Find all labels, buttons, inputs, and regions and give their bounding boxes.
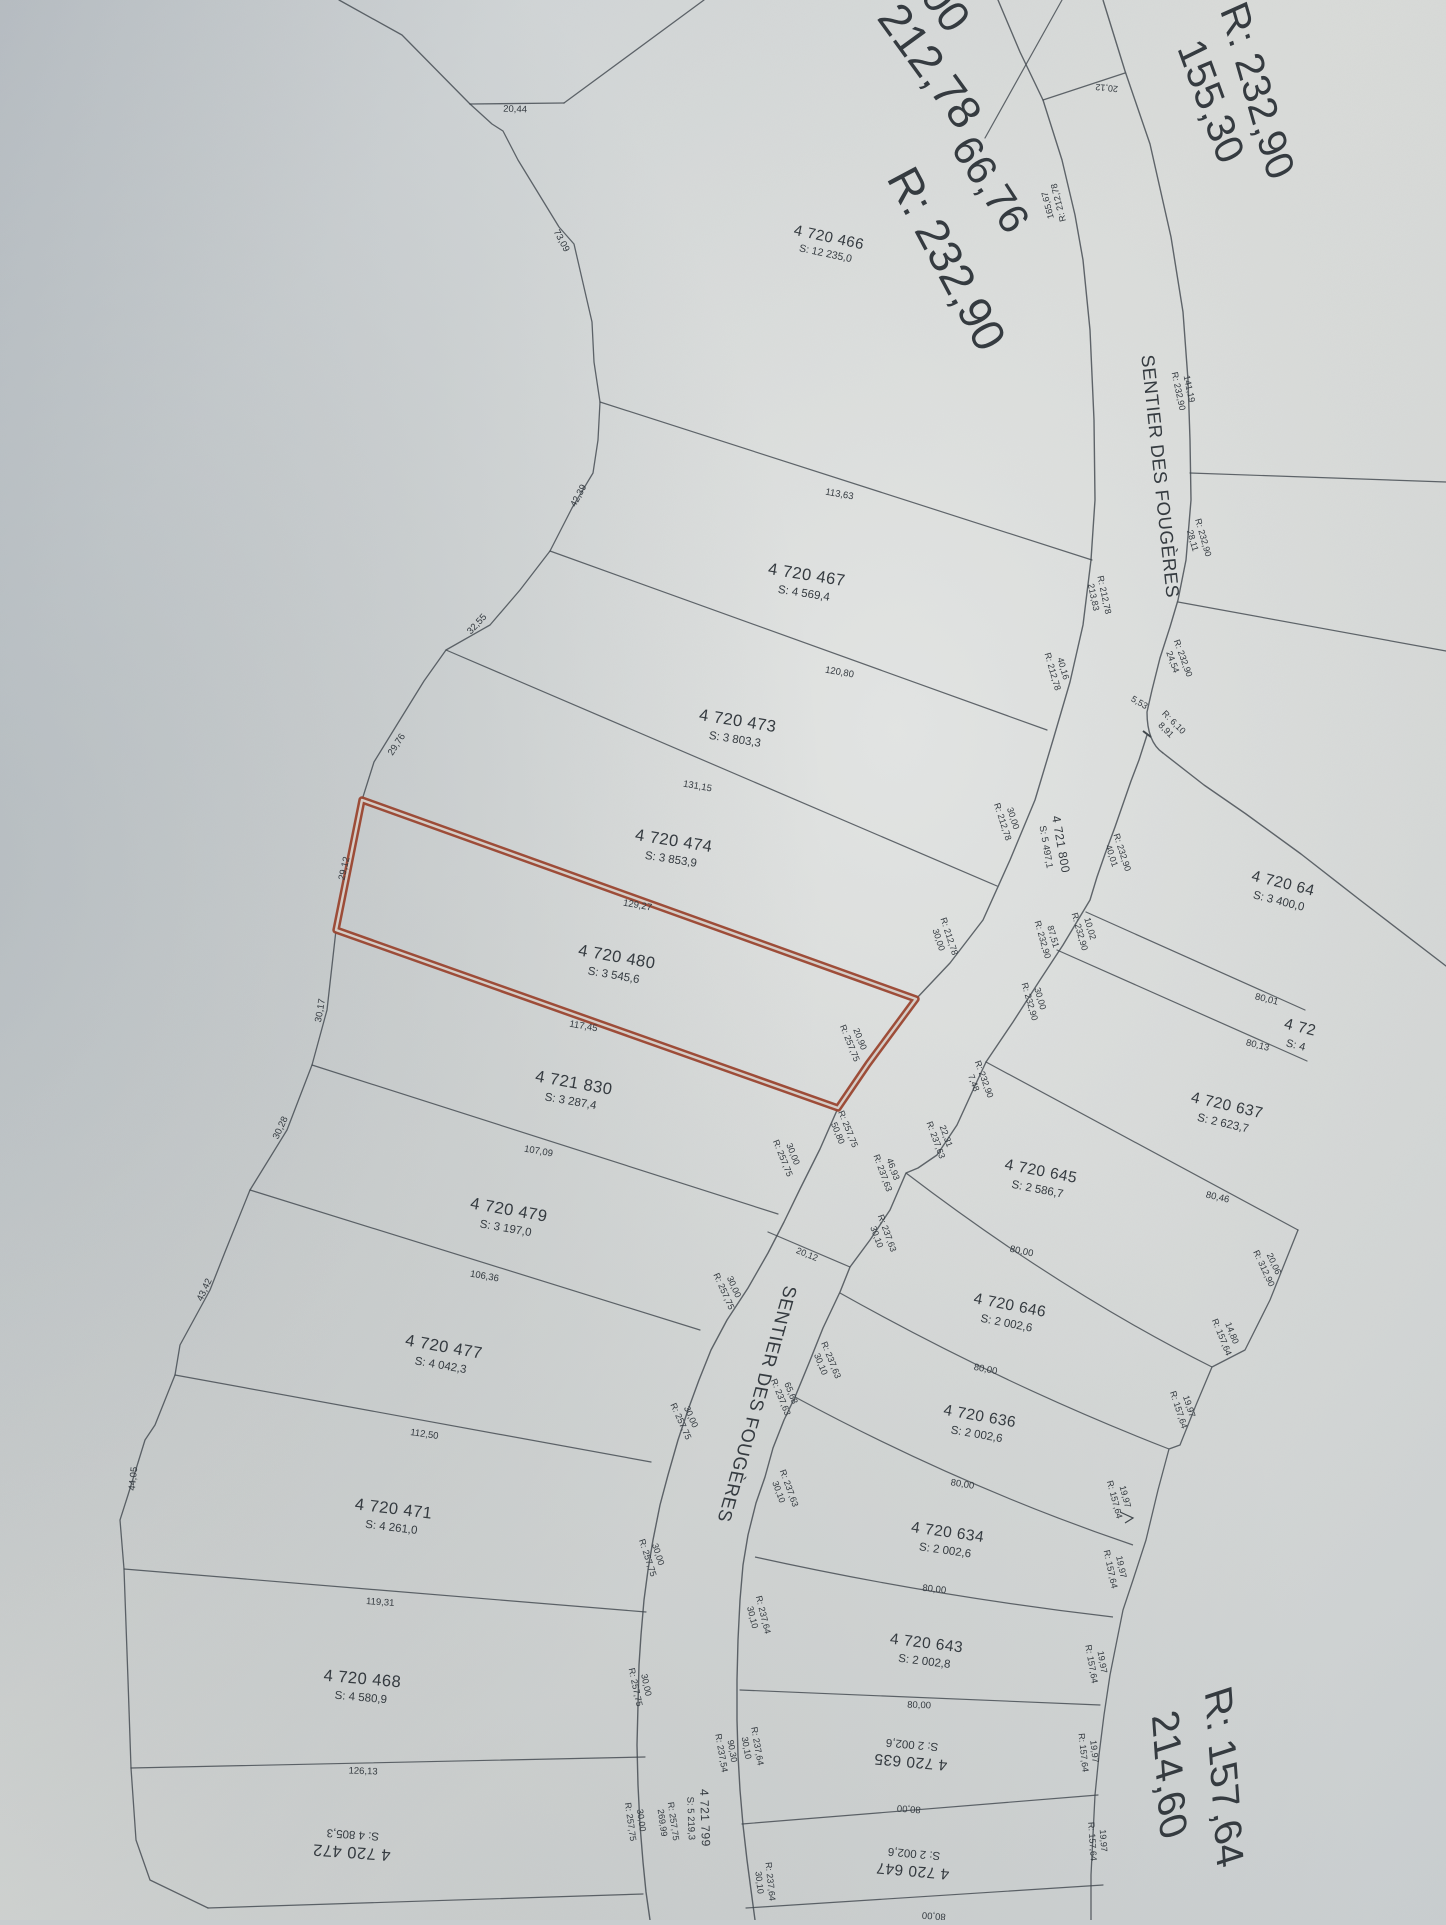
svg-text:S: 5 219,3: S: 5 219,3 bbox=[684, 1797, 697, 1841]
svg-text:19,97: 19,97 bbox=[1098, 1829, 1110, 1852]
svg-text:80,00: 80,00 bbox=[907, 1700, 931, 1712]
svg-text:126,13: 126,13 bbox=[348, 1765, 377, 1777]
svg-text:20,44: 20,44 bbox=[503, 104, 527, 116]
svg-text:4 721 799: 4 721 799 bbox=[697, 1789, 713, 1847]
svg-text:80,00: 80,00 bbox=[897, 1802, 921, 1815]
svg-text:214,60: 214,60 bbox=[1144, 1705, 1196, 1845]
svg-text:119,31: 119,31 bbox=[366, 1596, 395, 1609]
svg-text:80,00: 80,00 bbox=[922, 1909, 946, 1920]
